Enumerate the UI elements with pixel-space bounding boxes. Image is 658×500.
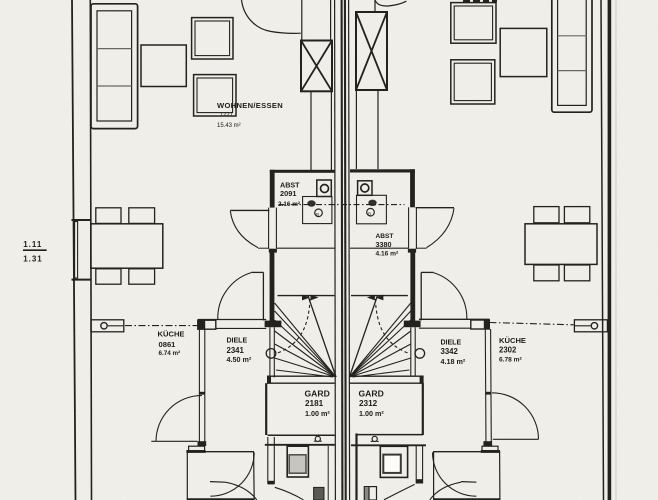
svg-text:DIELE: DIELE [227, 338, 248, 345]
svg-text:4.50 m²: 4.50 m² [227, 355, 252, 364]
svg-text:15.43 m²: 15.43 m² [217, 123, 241, 129]
svg-text:1.00 m²: 1.00 m² [359, 409, 384, 418]
svg-text:1.31: 1.31 [23, 255, 43, 264]
svg-text:2302: 2302 [499, 346, 517, 355]
svg-text:2312: 2312 [359, 399, 378, 408]
svg-text:KÜCHE: KÜCHE [158, 330, 185, 339]
svg-text:4.16 m²: 4.16 m² [376, 251, 400, 258]
svg-text:4.18 m²: 4.18 m² [441, 357, 466, 366]
svg-text:GARD: GARD [359, 389, 384, 399]
svg-text:B: B [316, 212, 319, 217]
svg-text:GARD: GARD [305, 389, 330, 399]
svg-text:0861: 0861 [159, 340, 177, 349]
svg-text:B: B [368, 211, 371, 216]
svg-text:2091: 2091 [280, 189, 296, 198]
svg-text:6.78 m²: 6.78 m² [499, 357, 523, 364]
svg-text:KÜCHE: KÜCHE [499, 336, 526, 345]
svg-text:DIELE: DIELE [441, 340, 462, 347]
svg-text:ABST: ABST [376, 233, 394, 240]
svg-text:3380: 3380 [376, 240, 392, 249]
svg-text:WOHNEN/ESSEN: WOHNEN/ESSEN [217, 101, 283, 110]
svg-text:1.00 m²: 1.00 m² [305, 409, 330, 418]
svg-text:2341: 2341 [227, 346, 245, 355]
svg-text:1221: 1221 [220, 112, 234, 119]
svg-text:2.16 m²: 2.16 m² [278, 201, 300, 208]
svg-text:6.74 m²: 6.74 m² [159, 350, 181, 357]
svg-text:1.11: 1.11 [23, 240, 42, 249]
svg-text:2181: 2181 [305, 399, 324, 408]
svg-text:3342: 3342 [441, 347, 459, 356]
